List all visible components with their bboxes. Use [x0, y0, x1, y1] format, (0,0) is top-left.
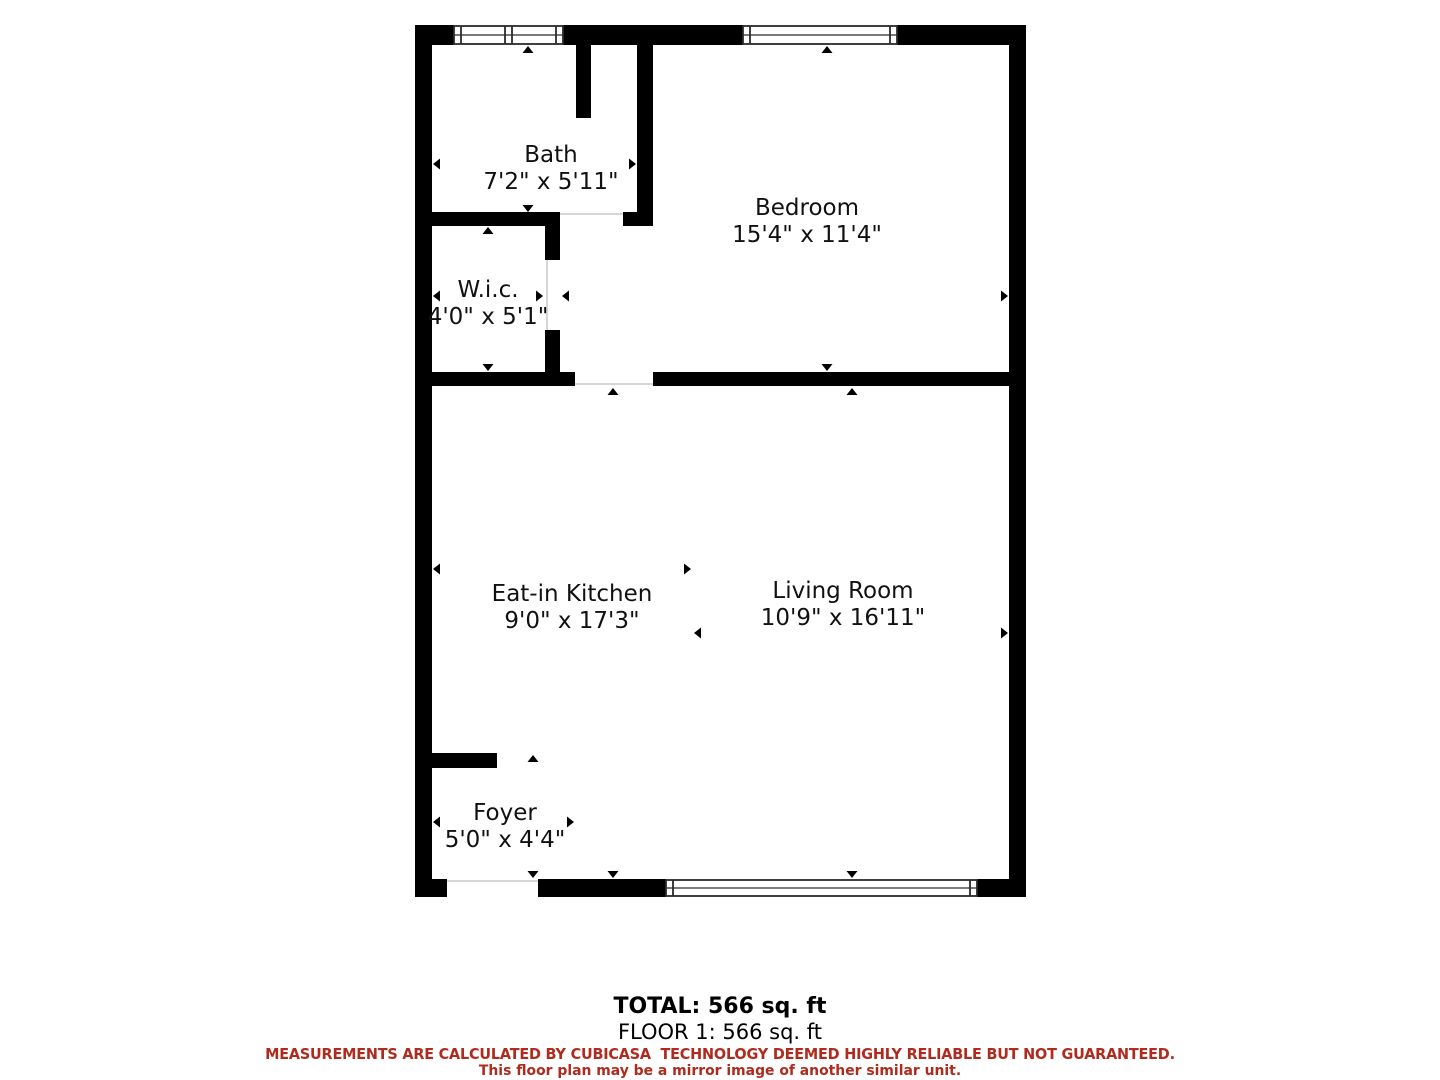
arrow-right-bath: [629, 159, 636, 170]
arrow-up-living: [847, 388, 858, 395]
wall-wic-right-top: [545, 212, 560, 260]
floorplan-drawing: [0, 0, 1440, 1080]
room-name-bedroom: Bedroom: [755, 195, 859, 221]
room-name-bath: Bath: [524, 142, 577, 168]
room-label-bedroom: Bedroom 15'4" x 11'4": [732, 195, 882, 249]
arrow-down-living: [847, 871, 858, 878]
window-bedroom: [743, 26, 897, 44]
wall-right: [1009, 25, 1026, 897]
arrow-up-bath: [523, 46, 534, 53]
wall-bath-bedroom-foot: [623, 212, 653, 226]
floorplan-page: Bath 7'2" x 5'11" Bedroom 15'4" x 11'4" …: [0, 0, 1440, 1080]
arrow-up-wic: [483, 227, 494, 234]
wall-wic-right-bottom: [545, 330, 560, 372]
wall-divider-right: [653, 372, 1026, 386]
wall-bath-bottom: [432, 212, 560, 226]
arrow-right-kitchen: [684, 564, 691, 575]
wall-foyer-stub: [428, 753, 497, 768]
arrow-right-foyer: [567, 817, 574, 828]
wall-bath-bedroom: [637, 45, 653, 226]
total-area-text: TOTAL: 566 sq. ft: [0, 994, 1440, 1019]
room-dims-kitchen: 9'0" x 17'3": [492, 608, 653, 635]
wall-top-right: [897, 25, 1026, 45]
floor-area-text: FLOOR 1: 566 sq. ft: [0, 1020, 1440, 1044]
disclaimer-line2: This floor plan may be a mirror image of…: [29, 1063, 1411, 1079]
room-dims-bedroom: 15'4" x 11'4": [732, 222, 882, 249]
room-dims-living: 10'9" x 16'11": [761, 605, 925, 632]
room-name-foyer: Foyer: [473, 800, 537, 826]
room-name-living: Living Room: [772, 578, 913, 604]
room-label-wic: W.i.c. 4'0" x 5'1": [428, 277, 549, 331]
room-label-bath: Bath 7'2" x 5'11": [483, 142, 618, 196]
arrow-left-bath: [433, 159, 440, 170]
arrow-up-bedroom: [822, 46, 833, 53]
wall-divider-left: [415, 372, 575, 386]
wall-bottom-middle: [538, 879, 666, 897]
arrow-left-kitchen: [433, 564, 440, 575]
room-dims-bath: 7'2" x 5'11": [483, 169, 618, 196]
room-name-kitchen: Eat-in Kitchen: [492, 581, 653, 607]
room-name-wic: W.i.c.: [457, 277, 518, 303]
room-dims-wic: 4'0" x 5'1": [428, 304, 549, 331]
window-bath: [454, 26, 563, 44]
wall-bottom-right: [977, 879, 1026, 897]
arrow-left-living: [694, 628, 701, 639]
arrow-left-bedroom: [562, 291, 569, 302]
room-label-living: Living Room 10'9" x 16'11": [761, 578, 925, 632]
arrow-right-living: [1001, 628, 1008, 639]
arrow-up-kitchen: [608, 388, 619, 395]
wall-bath-stub: [576, 45, 591, 118]
arrow-right-bedroom: [1001, 291, 1008, 302]
arrow-down-kitchen: [608, 871, 619, 878]
room-label-kitchen: Eat-in Kitchen 9'0" x 17'3": [492, 581, 653, 635]
arrow-down-foyer: [528, 871, 539, 878]
wall-bottom-left: [415, 879, 447, 897]
arrow-up-foyer: [528, 755, 539, 762]
arrow-down-bedroom: [822, 364, 833, 371]
room-label-foyer: Foyer 5'0" x 4'4": [445, 800, 566, 854]
wall-top-middle: [563, 25, 743, 45]
arrow-left-foyer: [433, 817, 440, 828]
room-dims-foyer: 5'0" x 4'4": [445, 827, 566, 854]
arrow-down-bath: [523, 205, 534, 212]
arrow-down-wic: [483, 364, 494, 371]
window-living: [666, 880, 977, 896]
disclaimer-line1: MEASUREMENTS ARE CALCULATED BY CUBICASA …: [29, 1045, 1411, 1063]
